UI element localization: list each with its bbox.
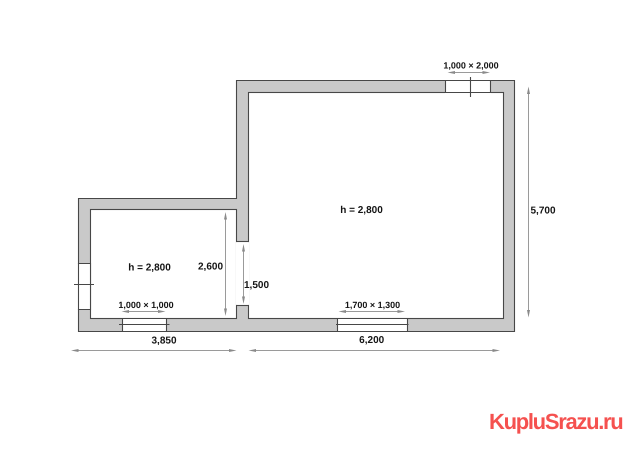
svg-text:6,200: 6,200 — [359, 335, 384, 346]
svg-text:5,700: 5,700 — [531, 206, 556, 217]
svg-text:2,600: 2,600 — [198, 262, 223, 273]
svg-text:1,000 × 1,000: 1,000 × 1,000 — [118, 300, 173, 310]
svg-text:1,700 × 1,300: 1,700 × 1,300 — [345, 300, 400, 310]
svg-text:h = 2,800: h = 2,800 — [128, 263, 171, 274]
svg-text:h = 2,800: h = 2,800 — [340, 205, 383, 216]
svg-text:1,500: 1,500 — [244, 280, 269, 291]
svg-text:1,000 × 2,000: 1,000 × 2,000 — [443, 61, 498, 71]
svg-text:KupluSrazu.ru: KupluSrazu.ru — [489, 409, 622, 434]
svg-text:3,850: 3,850 — [151, 336, 176, 347]
